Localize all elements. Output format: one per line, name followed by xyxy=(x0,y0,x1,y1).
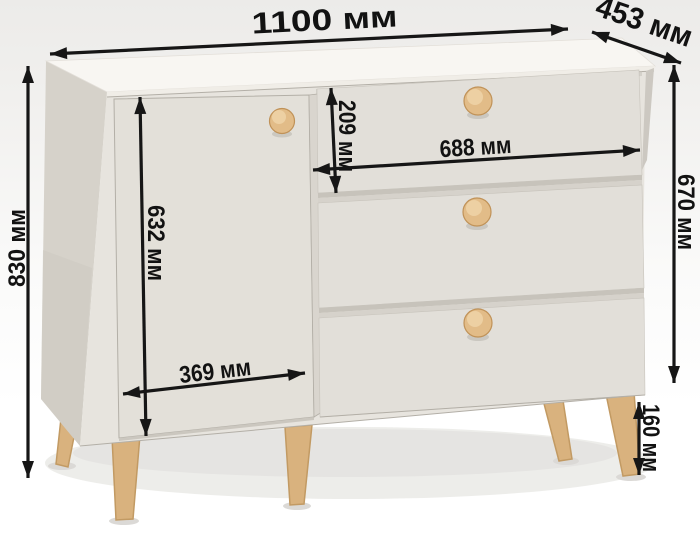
arrowhead xyxy=(663,52,681,63)
dimension-body-height-label: 670 мм xyxy=(672,174,699,250)
arrowhead xyxy=(551,24,568,36)
drawers xyxy=(317,70,645,417)
dimension-leg-height: 160 мм xyxy=(633,402,664,475)
arrowhead xyxy=(668,366,680,383)
arrowhead xyxy=(22,461,34,478)
dimension-width-label: 1100 мм xyxy=(251,0,398,40)
arrowhead xyxy=(668,65,680,82)
dimension-total-height: 830 мм xyxy=(4,66,34,478)
dimension-drawer-width-label: 688 мм xyxy=(439,132,513,163)
dimension-top-drawer-height-label: 209 мм xyxy=(333,100,360,172)
dimension-door-height-label: 632 мм xyxy=(142,205,169,281)
leg-front-left xyxy=(112,435,140,520)
arrowhead xyxy=(22,66,34,83)
drawer-2[interactable] xyxy=(318,185,644,318)
dimension-diagram: 1100 мм 453 мм 830 мм 670 мм 209 мм 688 … xyxy=(0,0,700,540)
arrowhead xyxy=(50,47,67,59)
dimension-body-height: 670 мм xyxy=(668,65,699,383)
dimension-total-height-label: 830 мм xyxy=(4,209,31,287)
dresser-dimension-scene: 1100 мм 453 мм 830 мм 670 мм 209 мм 688 … xyxy=(0,0,700,540)
